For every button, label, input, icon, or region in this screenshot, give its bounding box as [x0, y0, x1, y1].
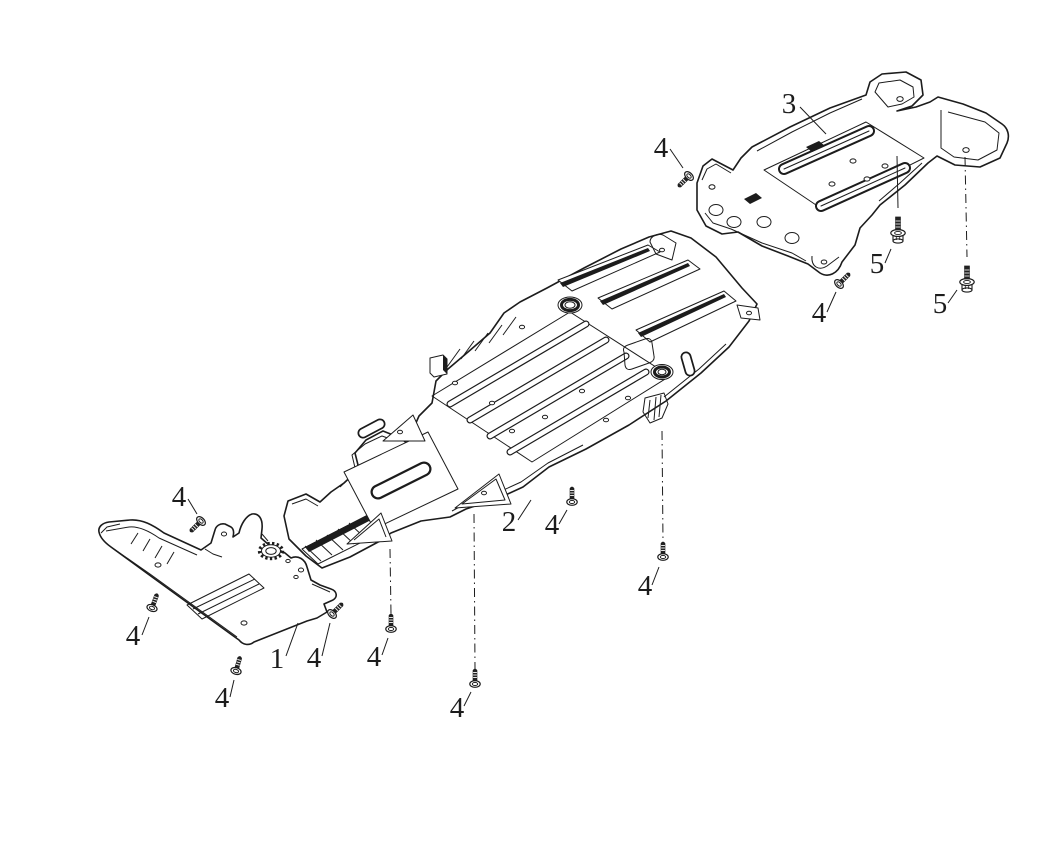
leader-line-fastener-3 [142, 617, 149, 635]
screw-glyph [146, 592, 162, 613]
flange-bolt-glyph [960, 266, 974, 292]
projection-line-7 [474, 514, 475, 669]
screw-glyph [230, 655, 245, 675]
screw-icon-1 [833, 270, 853, 290]
leader-line-fastener-2 [188, 499, 197, 514]
fastener-callout-label-7: 4 [450, 692, 465, 724]
screw-icon-8 [567, 487, 577, 505]
screw-glyph [675, 170, 695, 190]
screw-glyph [658, 542, 668, 560]
fastener-callout-label-9: 4 [638, 570, 653, 602]
projection-line-9 [662, 431, 663, 542]
leader-line-fastener-4 [230, 680, 234, 697]
screw-icon-0 [675, 170, 695, 190]
diagram-canvas: 444444444455123 [0, 0, 1064, 841]
screw-icon-9 [658, 542, 668, 560]
part-callout-label-center-skid-plate: 2 [502, 506, 517, 538]
part-3-rear-skid-plate-drawing [697, 72, 1008, 275]
leader-line-fastener-11 [948, 290, 957, 303]
projection-line-6 [390, 549, 391, 614]
leader-line-fastener-5 [322, 623, 330, 656]
part-callout-label-rear-skid-plate: 3 [782, 88, 797, 120]
leader-line-fastener-7 [464, 692, 471, 706]
projection-line-11 [965, 157, 967, 257]
part-2-center-skid-plate-drawing [284, 231, 760, 568]
leader-line-fastener-9 [652, 567, 659, 585]
screw-glyph [567, 487, 577, 505]
leader-line-fastener-6 [382, 638, 388, 655]
leader-line-fastener-8 [559, 510, 567, 524]
fastener-callout-label-5: 4 [307, 642, 322, 674]
fastener-callout-label-0: 4 [654, 132, 669, 164]
fastener-callout-label-3: 4 [126, 620, 141, 652]
screw-icon-6 [386, 614, 396, 632]
fastener-callout-label-11: 5 [933, 288, 948, 320]
screw-icon-4 [230, 655, 245, 675]
fastener-callout-label-6: 4 [367, 641, 382, 673]
screw-glyph [470, 669, 480, 687]
screw-glyph [833, 270, 853, 290]
flange-bolt-icon-10 [891, 217, 905, 243]
fastener-callout-label-4: 4 [215, 682, 230, 714]
screw-icon-3 [146, 592, 162, 613]
fastener-callout-label-1: 4 [812, 297, 827, 329]
screw-icon-2 [187, 515, 207, 535]
leader-line-center-skid-plate [518, 500, 531, 520]
fastener-callout-label-10: 5 [870, 248, 885, 280]
screw-glyph [326, 600, 346, 620]
leader-line-fastener-1 [827, 292, 836, 312]
leader-line-fastener-10 [885, 249, 891, 263]
part-callout-label-front-skid-plate: 1 [270, 643, 285, 675]
leader-line-fastener-0 [670, 149, 683, 168]
screw-glyph [187, 515, 207, 535]
screw-glyph [386, 614, 396, 632]
screw-icon-7 [470, 669, 480, 687]
diagram-page: 444444444455123 [0, 0, 1064, 841]
flange-bolt-glyph [891, 217, 905, 243]
flange-bolt-icon-11 [960, 266, 974, 292]
part-2-outline [284, 231, 757, 568]
fastener-callout-label-8: 4 [545, 509, 560, 541]
screw-icon-5 [326, 600, 346, 620]
part-3-outline [697, 72, 1008, 275]
fastener-callout-label-2: 4 [172, 481, 187, 513]
